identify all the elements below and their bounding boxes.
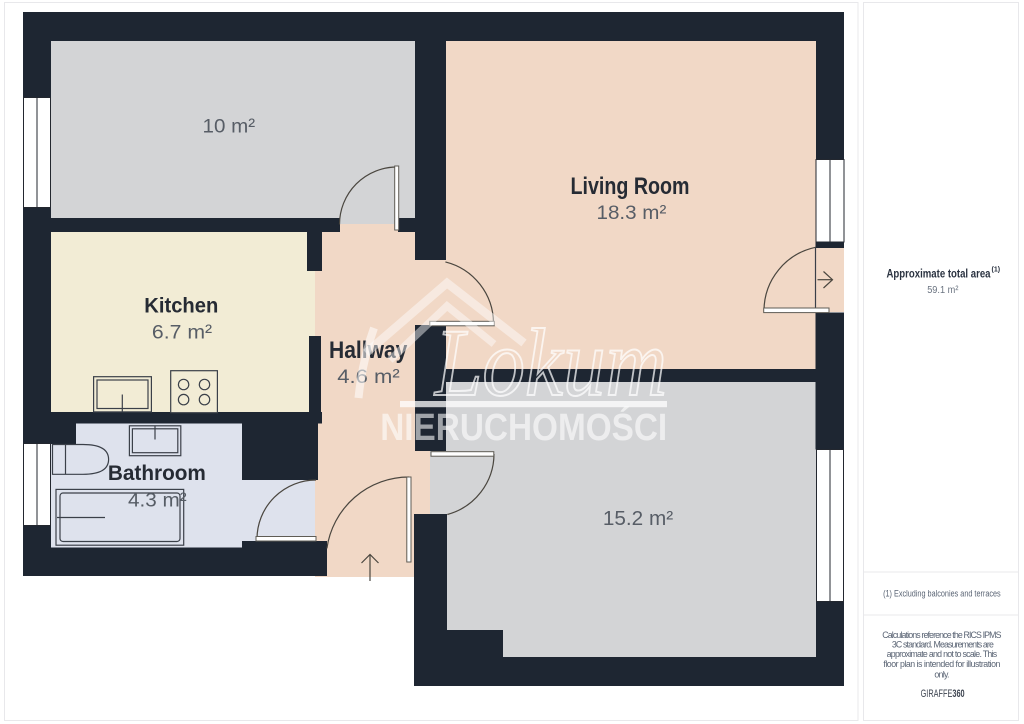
svg-text:NIERUCHOMOŚCI: NIERUCHOMOŚCI bbox=[380, 405, 667, 449]
svg-text:Kitchen: Kitchen bbox=[144, 294, 218, 318]
svg-text:Approximate total area: Approximate total area bbox=[887, 267, 991, 281]
svg-text:Bathroom: Bathroom bbox=[108, 462, 206, 485]
svg-text:floor plan is intended for ill: floor plan is intended for illustration bbox=[883, 659, 1000, 669]
svg-text:(1): (1) bbox=[992, 267, 1001, 274]
svg-text:approximate and not to scale.: approximate and not to scale. This bbox=[887, 649, 998, 659]
svg-text:10 m²: 10 m² bbox=[203, 116, 256, 138]
svg-text:Calculations reference the RIC: Calculations reference the RICS IPMS bbox=[882, 630, 1001, 640]
svg-text:GIRAFFE360: GIRAFFE360 bbox=[921, 688, 965, 700]
svg-text:(1) Excluding balconies and te: (1) Excluding balconies and terraces bbox=[883, 589, 1001, 599]
svg-text:4.3 m²: 4.3 m² bbox=[128, 490, 187, 512]
svg-text:4.6 m²: 4.6 m² bbox=[337, 366, 400, 388]
svg-text:6.7 m²: 6.7 m² bbox=[152, 322, 213, 344]
svg-text:only.: only. bbox=[934, 669, 949, 679]
svg-text:Lokum: Lokum bbox=[433, 309, 667, 416]
svg-text:3C standard. Measurements are: 3C standard. Measurements are bbox=[892, 640, 994, 650]
svg-text:Living Room: Living Room bbox=[571, 173, 690, 200]
svg-text:15.2 m²: 15.2 m² bbox=[603, 508, 674, 530]
svg-text:59.1 m²: 59.1 m² bbox=[927, 285, 959, 296]
svg-text:18.3 m²: 18.3 m² bbox=[597, 202, 667, 224]
